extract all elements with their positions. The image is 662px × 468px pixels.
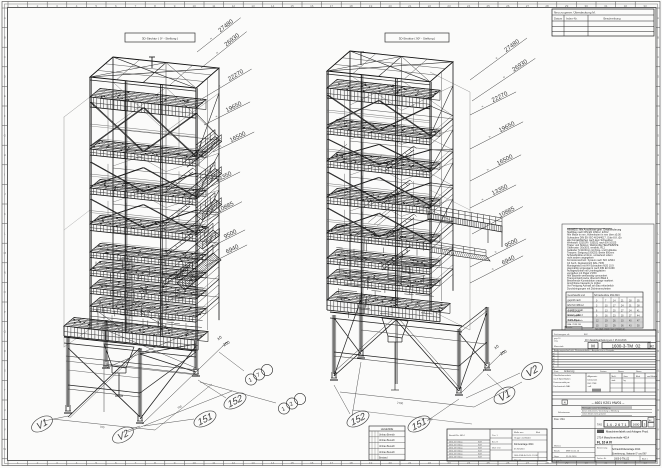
svg-text:19: 19	[369, 461, 373, 465]
svg-text:13: 13	[251, 461, 255, 465]
svg-text:2714 Maschinenhalle 4014: 2714 Maschinenhalle 4014	[597, 436, 630, 440]
svg-text:Benennung: Benennung	[597, 448, 607, 450]
svg-text:Grund geprfd: Grund geprfd	[568, 314, 582, 317]
svg-text:700: 700	[100, 425, 106, 430]
svg-text:Weitergabe sowie Vervielfältig: Weitergabe sowie Vervielfältigung	[582, 407, 610, 410]
svg-text:Bestand: Bestand	[379, 457, 388, 460]
svg-text:12: 12	[232, 4, 236, 8]
svg-text:25: 25	[487, 4, 491, 8]
svg-text:U: U	[4, 408, 6, 412]
svg-text:K: K	[657, 212, 659, 216]
svg-text:LEGENDE: LEGENDE	[381, 427, 394, 431]
svg-text:W: W	[657, 447, 660, 451]
svg-text:K: K	[4, 212, 6, 216]
svg-text:St37: St37	[478, 444, 482, 447]
svg-text:-mK: -mK	[588, 386, 592, 388]
svg-text:Datum: Datum	[600, 370, 607, 373]
svg-text:Gez. 1:1: Gez. 1:1	[514, 459, 521, 461]
svg-text:St37: St37	[478, 456, 482, 459]
svg-text:H: H	[657, 153, 659, 157]
svg-text:EN ISO 3834-2: EN ISO 3834-2	[568, 304, 585, 307]
svg-text:Beschreibung: Beschreibung	[603, 17, 621, 21]
svg-text:W: W	[3, 447, 6, 451]
svg-text:Neu zu gener. Überdeckung M.: Neu zu gener. Überdeckung M.	[554, 11, 596, 15]
svg-text:18: 18	[349, 461, 353, 465]
svg-text:MKE 10.11.16: MKE 10.11.16	[566, 451, 580, 453]
svg-text:Index-Nr.: Index-Nr.	[566, 17, 578, 21]
svg-text:11: 11	[212, 461, 215, 465]
svg-text:Blatt: Blatt	[536, 431, 540, 434]
svg-text:20: 20	[389, 461, 393, 465]
svg-text:2700: 2700	[397, 401, 404, 406]
svg-text:28: 28	[545, 461, 549, 465]
svg-text:21: 21	[408, 4, 412, 8]
svg-text:V: V	[657, 427, 659, 431]
svg-text:4614-04 Umbau: 4614-04 Umbau	[449, 451, 463, 453]
svg-text:Massstab: Massstab	[554, 345, 564, 348]
svg-text:Umbau Bereich: Umbau Bereich	[379, 439, 396, 442]
svg-text:Maß-: Maß-	[612, 376, 617, 378]
svg-text:3D-Struktur ( 90° - Stellung ): 3D-Struktur ( 90° - Stellung )	[399, 36, 436, 40]
svg-text:Umbau Bereich: Umbau Bereich	[379, 445, 396, 448]
svg-text:Maße mm: Maße mm	[514, 432, 524, 434]
svg-text:nach Spezifikation: nach Spezifikation	[554, 378, 572, 381]
svg-text:St37: St37	[478, 453, 482, 456]
svg-text:22: 22	[428, 461, 432, 465]
svg-text:16: 16	[310, 461, 314, 465]
svg-text:– 4601 K201 HW01 –: – 4601 K201 HW01 –	[592, 401, 625, 405]
svg-text:von Blättern: von Blättern	[647, 375, 657, 378]
svg-text:30: 30	[585, 4, 589, 8]
svg-text:14: 14	[271, 4, 275, 8]
svg-text:18: 18	[349, 4, 353, 8]
svg-text:10: 10	[193, 4, 197, 8]
svg-text:Neu Blatt erstellt nach Vorlag: Neu Blatt erstellt nach Vorlage alt	[595, 328, 625, 331]
svg-text:Schlussanstrich: Schlussanstrich	[568, 319, 584, 322]
svg-text:03 / Zusatzbearbeitung ers.f.: 03 / Zusatzbearbeitung ers.f. 25.10.2016	[585, 339, 627, 342]
svg-text:N: N	[4, 271, 6, 275]
svg-text:Ans. B: Ans. B	[492, 441, 499, 444]
svg-text:Frau: USA: Frau: USA	[554, 418, 565, 421]
svg-text:ISO 2768: ISO 2768	[588, 383, 598, 385]
svg-text:21: 21	[408, 461, 412, 465]
svg-text:S: S	[657, 369, 659, 373]
svg-text:C: C	[4, 55, 6, 59]
svg-text:1600-3-TM_02: 1600-3-TM_02	[612, 344, 641, 349]
svg-text:E: E	[657, 94, 659, 98]
svg-text:4614-06 Umbau: 4614-06 Umbau	[449, 457, 463, 459]
svg-text:Maß 1:50: Maß 1:50	[492, 448, 501, 450]
svg-text:15: 15	[291, 4, 295, 8]
svg-text:R: R	[657, 349, 659, 353]
svg-text:Deckanstrich RAL: Deckanstrich RAL	[554, 385, 571, 388]
svg-text:26: 26	[506, 4, 510, 8]
svg-text:17: 17	[330, 461, 334, 465]
svg-text:32: 32	[624, 4, 628, 8]
svg-text:4614-03 Umbau: 4614-03 Umbau	[449, 448, 463, 450]
svg-text:3D-Struktur ( 0° - Stellung ): 3D-Struktur ( 0° - Stellung )	[142, 36, 178, 40]
svg-text:Bearb.: Bearb.	[554, 450, 561, 453]
svg-text:FL 10 A IV: FL 10 A IV	[597, 440, 613, 444]
svg-text:Oberflächenschutz: Oberflächenschutz	[554, 374, 571, 377]
svg-text:Datum: Datum	[554, 17, 563, 21]
svg-text:seines Inhalts nicht gestattet: seines Inhalts nicht gestattet	[582, 413, 606, 416]
svg-text:Gew.: Gew.	[624, 376, 629, 378]
svg-text:Maschinenfabrik und Anlagen Pr: Maschinenfabrik und Anlagen Prod.	[606, 430, 649, 434]
svg-text:Blatt 1: Blatt 1	[642, 457, 649, 460]
svg-text:Förderanlage 4614: Förderanlage 4614	[514, 443, 534, 446]
svg-text:Bestell-Nr. 4614: Bestell-Nr. 4614	[449, 434, 465, 437]
svg-text:25: 25	[487, 461, 491, 465]
svg-text:R: R	[4, 349, 6, 353]
svg-text:31: 31	[604, 4, 608, 8]
svg-text:Im Smelter: Im Smelter	[514, 447, 525, 450]
svg-text:1600: 1600	[633, 423, 640, 427]
svg-text:C: C	[657, 55, 659, 59]
svg-text:17: 17	[330, 4, 334, 8]
svg-text:33: 33	[643, 4, 647, 8]
svg-text:Gepr.: Gepr.	[554, 455, 560, 458]
svg-text:11: 11	[212, 4, 215, 8]
svg-text:28: 28	[545, 4, 549, 8]
svg-text:U: U	[657, 408, 659, 412]
svg-text:B: B	[657, 35, 659, 39]
svg-text:13: 13	[251, 4, 255, 8]
svg-text:Erweiterung, Variante 0° und 9: Erweiterung, Variante 0° und 90°	[612, 452, 647, 455]
svg-text:geprüft nach: geprüft nach	[568, 299, 582, 302]
svg-text:Zeichnungsnr. alt:: Zeichnungsnr. alt:	[554, 333, 570, 336]
svg-text:Allgemein-: Allgemein-	[588, 375, 598, 378]
svg-text:16: 16	[310, 4, 314, 8]
svg-text:TAG: TAG	[597, 423, 602, 427]
svg-text:Werkst.: Werkst.	[554, 445, 561, 448]
svg-text:Nüt Begrüng:: Nüt Begrüng:	[568, 310, 581, 313]
svg-text:4614-05 Umbau: 4614-05 Umbau	[449, 454, 463, 456]
svg-text:toleranzen: toleranzen	[588, 378, 599, 381]
svg-text:19: 19	[369, 4, 373, 8]
svg-text:24: 24	[467, 4, 471, 8]
svg-text:15: 15	[291, 461, 295, 465]
svg-text:Zust.: Zust.	[554, 370, 559, 373]
svg-text:24: 24	[467, 461, 471, 465]
svg-text:B: B	[4, 35, 6, 39]
svg-text:A2: A2	[650, 345, 654, 349]
svg-text:St37: St37	[478, 447, 482, 450]
svg-text:26: 26	[506, 461, 510, 465]
svg-text:H: H	[4, 153, 6, 157]
svg-text:Zeichn.-Nr.: Zeichn.-Nr.	[597, 457, 607, 460]
svg-text:Umbau Bereich: Umbau Bereich	[379, 433, 396, 436]
svg-text:Umbau Bereich: Umbau Bereich	[379, 451, 396, 454]
svg-text:RAL 7035 DB: RAL 7035 DB	[568, 323, 582, 326]
svg-text:4614-01 Umbau: 4614-01 Umbau	[449, 442, 463, 444]
svg-text:23: 23	[447, 461, 451, 465]
svg-text:P: P	[4, 310, 6, 314]
svg-text:1 4 . 2 6 7 1: 1 4 . 2 6 7 1	[606, 423, 626, 427]
svg-text:S: S	[4, 369, 6, 373]
svg-text:22: 22	[428, 4, 432, 8]
svg-text:10: 10	[193, 461, 197, 465]
svg-text:kg: kg	[624, 380, 626, 382]
svg-text:F: F	[657, 114, 659, 118]
svg-text:Norm: Norm	[636, 370, 642, 373]
svg-text:Schraubförderanlage 4614: Schraubförderanlage 4614	[612, 448, 641, 451]
svg-text:Geschweißt und: Geschweißt und	[568, 294, 586, 297]
svg-text:Blatt: Blatt	[636, 375, 640, 378]
svg-text:Änderung: Änderung	[564, 370, 575, 373]
svg-text:St37: St37	[478, 450, 482, 453]
svg-text:Schutzverm.: Schutzverm.	[558, 411, 571, 414]
svg-text:1600-3-TM_02: 1600-3-TM_02	[614, 458, 630, 460]
svg-text:E: E	[4, 94, 6, 98]
svg-text:Pos. 1: Pos. 1	[492, 435, 499, 437]
svg-text:D: D	[4, 75, 6, 79]
svg-text:1600-3 MB-Nr.20-10. 12.062: 1600-3 MB-Nr.20-10. 12.062	[514, 454, 538, 457]
svg-text:T: T	[657, 388, 659, 392]
svg-text:20: 20	[389, 4, 393, 8]
svg-text:D: D	[657, 75, 659, 79]
svg-text:29: 29	[565, 4, 569, 8]
svg-text:St37: St37	[478, 441, 482, 444]
svg-text:F: F	[4, 114, 6, 118]
svg-text:4614-02 Umbau: 4614-02 Umbau	[449, 445, 463, 447]
svg-text:Durchdringungen mit Dichtmansc: Durchdringungen mit Dichtmanschetten	[567, 287, 612, 290]
svg-text:N: N	[657, 271, 659, 275]
svg-text:dieses Dokuments, Verwertung u: dieses Dokuments, Verwertung u. Mitteilu…	[582, 410, 619, 413]
svg-text:V: V	[4, 427, 6, 431]
svg-text:P: P	[657, 310, 659, 314]
svg-text:14: 14	[271, 461, 275, 465]
svg-text:Freigabe: Freigabe	[554, 459, 563, 462]
svg-text:eing.: eing.	[554, 340, 559, 342]
svg-text:12: 12	[232, 461, 236, 465]
svg-text:Schraubenliste M12-M24: Schraubenliste M12-M24	[594, 294, 620, 297]
svg-text:Gruppe und Böden: Gruppe und Böden	[514, 438, 531, 440]
svg-text:A: A	[657, 16, 659, 20]
svg-text:M: M	[591, 344, 595, 349]
svg-text:27: 27	[526, 4, 530, 8]
svg-text:27: 27	[526, 461, 530, 465]
svg-text:Feuerverzinkt µm: Feuerverzinkt µm	[554, 381, 570, 384]
svg-text:A: A	[4, 16, 6, 20]
svg-text:23: 23	[447, 4, 451, 8]
svg-text:T: T	[4, 388, 6, 392]
